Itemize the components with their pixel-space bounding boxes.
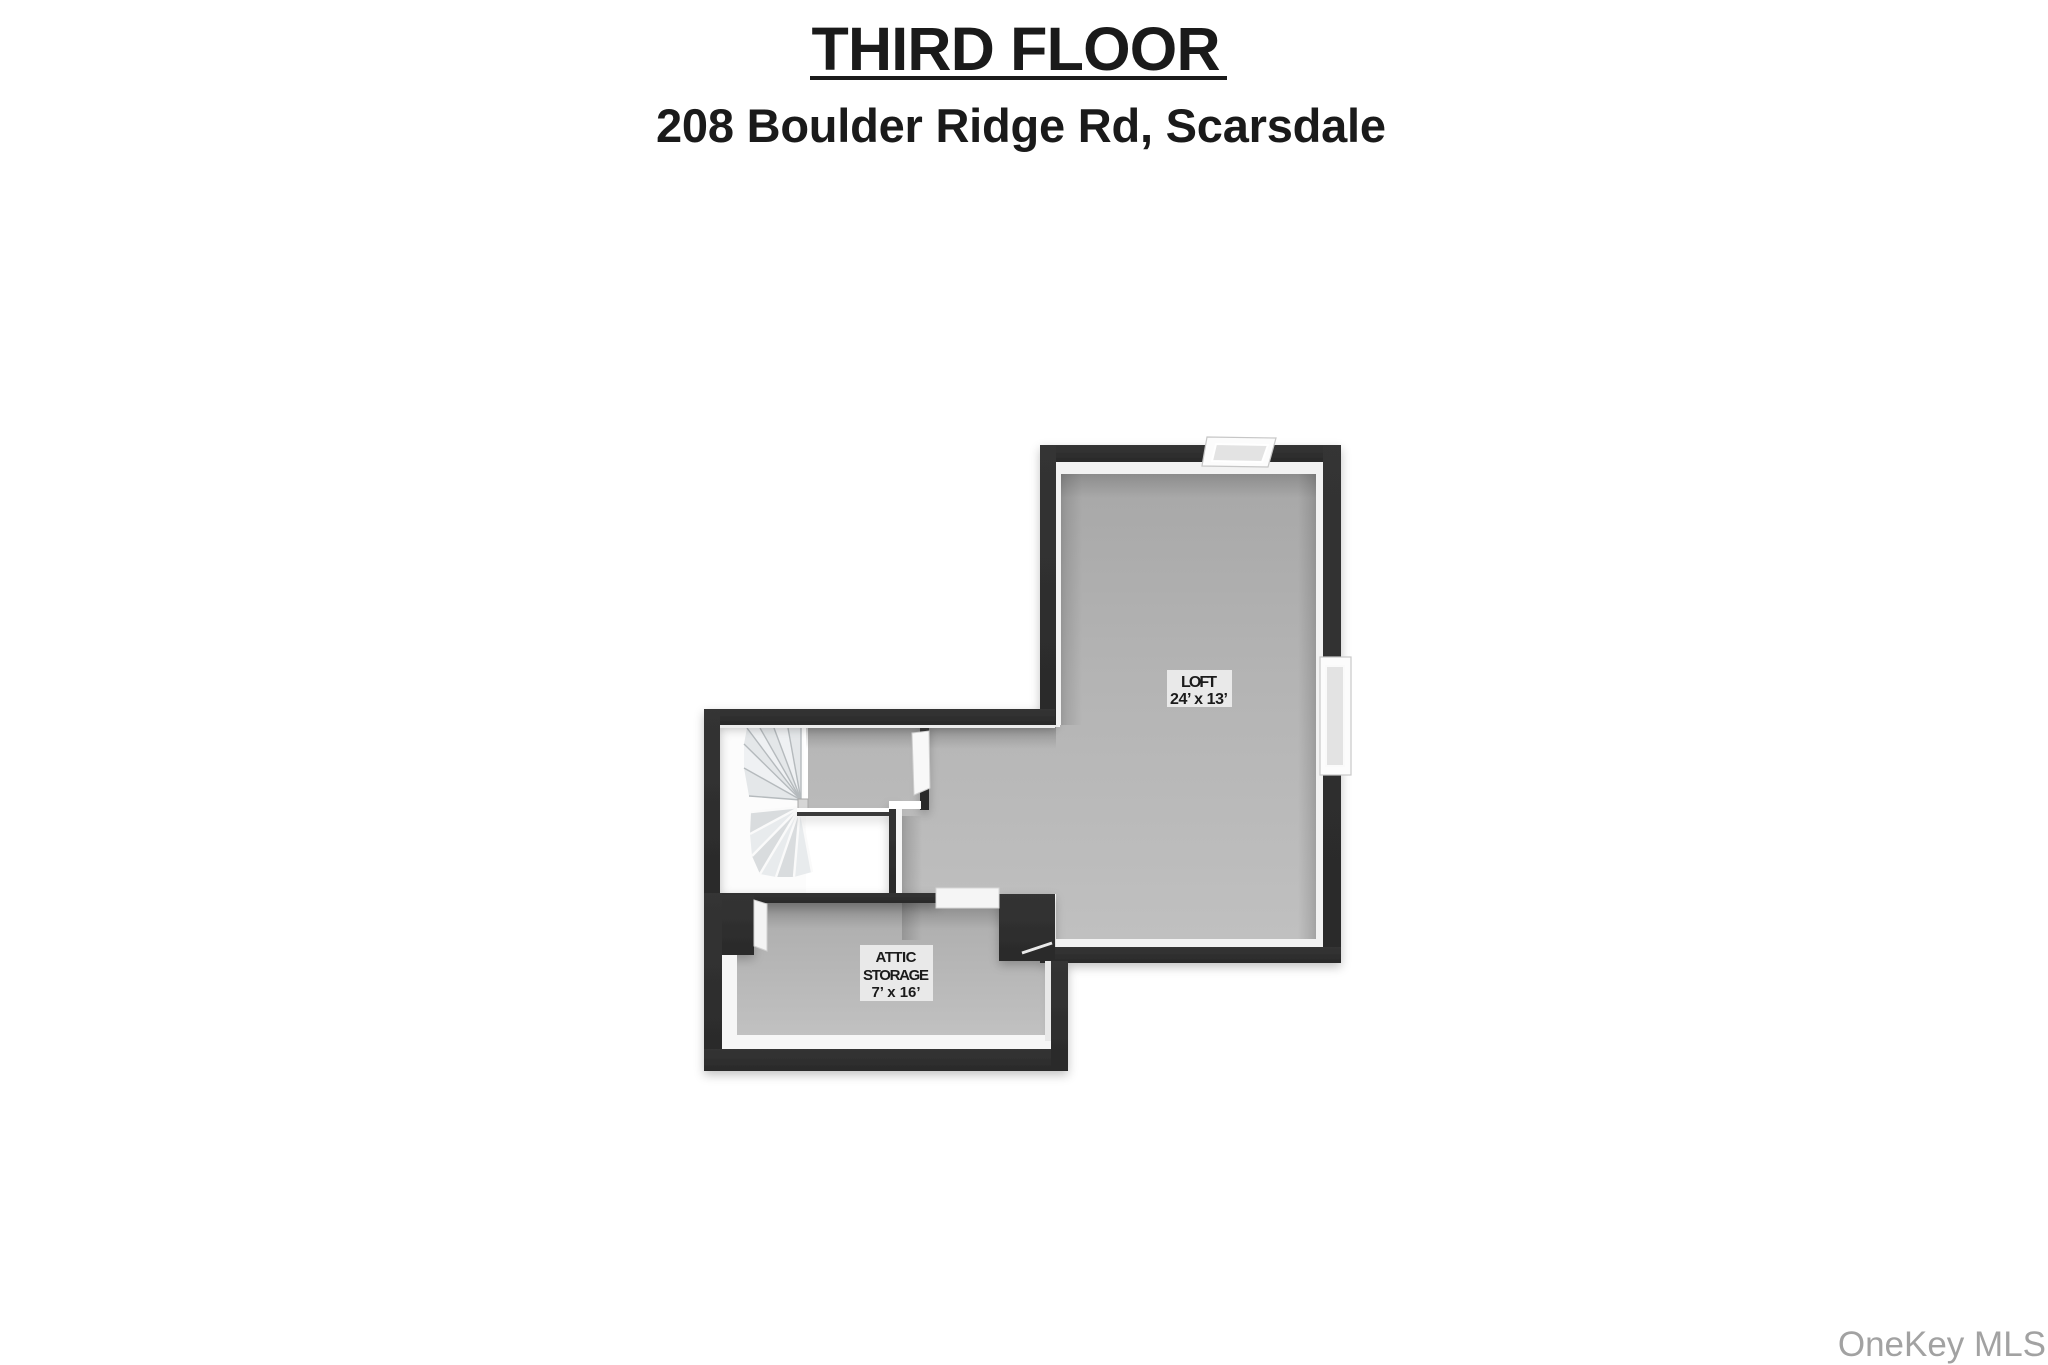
svg-text:STORAGE: STORAGE — [863, 967, 929, 984]
svg-text:THIRD FLOOR: THIRD FLOOR — [812, 15, 1221, 83]
svg-text:208 Boulder Ridge Rd, Scarsdal: 208 Boulder Ridge Rd, Scarsdale — [656, 99, 1386, 152]
svg-text:LOFT: LOFT — [1181, 674, 1217, 691]
svg-text:OneKey MLS: OneKey MLS — [1838, 1325, 2046, 1364]
svg-text:ATTIC: ATTIC — [876, 949, 917, 966]
svg-text:7’ x 16’: 7’ x 16’ — [872, 984, 921, 1001]
svg-text:24’ x 13’: 24’ x 13’ — [1170, 691, 1228, 708]
